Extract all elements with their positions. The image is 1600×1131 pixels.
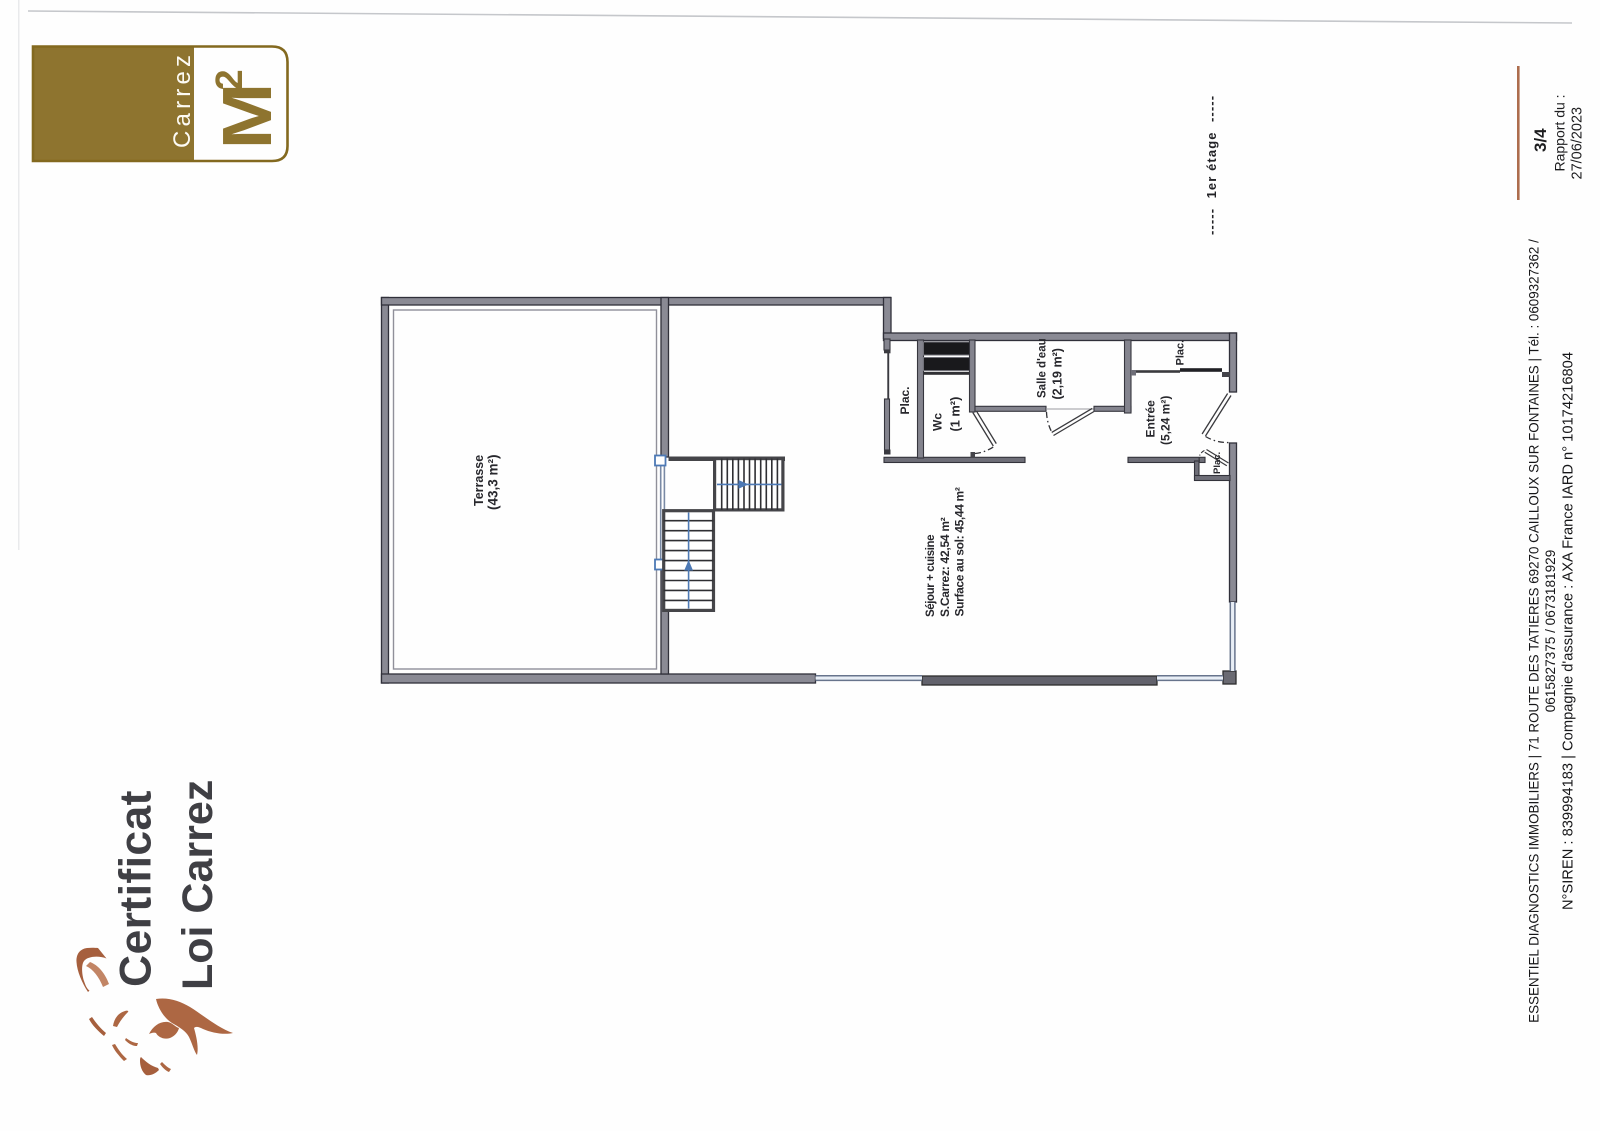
- svg-text:Wc: Wc: [931, 413, 945, 431]
- svg-text:ESSENTIEL DIAGNOSTICS IMMOBILI: ESSENTIEL DIAGNOSTICS IMMOBILIERS | 71 R…: [1527, 239, 1542, 1023]
- svg-text:Rapport du :: Rapport du :: [1552, 94, 1568, 171]
- svg-text:Entrée: Entrée: [1144, 400, 1158, 438]
- svg-text:Séjour + cuisine: Séjour + cuisine: [925, 535, 937, 617]
- svg-text:Plac.: Plac.: [1212, 452, 1223, 474]
- svg-text:(1 m²): (1 m²): [948, 397, 963, 432]
- svg-text:3/4: 3/4: [1531, 128, 1550, 152]
- svg-text:27/06/2023: 27/06/2023: [1570, 107, 1586, 180]
- svg-text:Carrez: Carrez: [169, 51, 196, 148]
- svg-text:2: 2: [209, 69, 251, 90]
- svg-text:Surface au sol: 45,44 m²: Surface au sol: 45,44 m²: [953, 487, 967, 616]
- svg-text:Loi Carrez: Loi Carrez: [174, 780, 222, 990]
- svg-text:----- 1er étage -----: ----- 1er étage -----: [1204, 95, 1219, 235]
- svg-text:Certificat: Certificat: [112, 790, 161, 987]
- svg-text:(5,24 m²): (5,24 m²): [1159, 396, 1173, 445]
- svg-text:Plac.: Plac.: [1175, 340, 1187, 366]
- svg-text:Terrasse: Terrasse: [472, 455, 486, 506]
- svg-text:S.Carrez: 42,54 m²: S.Carrez: 42,54 m²: [938, 517, 952, 617]
- svg-text:Salle d'eau: Salle d'eau: [1037, 338, 1049, 398]
- svg-text:N°SIREN : 839994183 | Compagni: N°SIREN : 839994183 | Compagnie d'assura…: [1561, 352, 1577, 910]
- svg-text:0615827375 / 0673181929: 0615827375 / 0673181929: [1543, 550, 1558, 713]
- svg-text:(43,3 m²): (43,3 m²): [486, 454, 501, 510]
- svg-text:M: M: [208, 83, 286, 150]
- svg-text:(2,19 m²): (2,19 m²): [1051, 348, 1065, 399]
- svg-text:Plac.: Plac.: [898, 386, 912, 414]
